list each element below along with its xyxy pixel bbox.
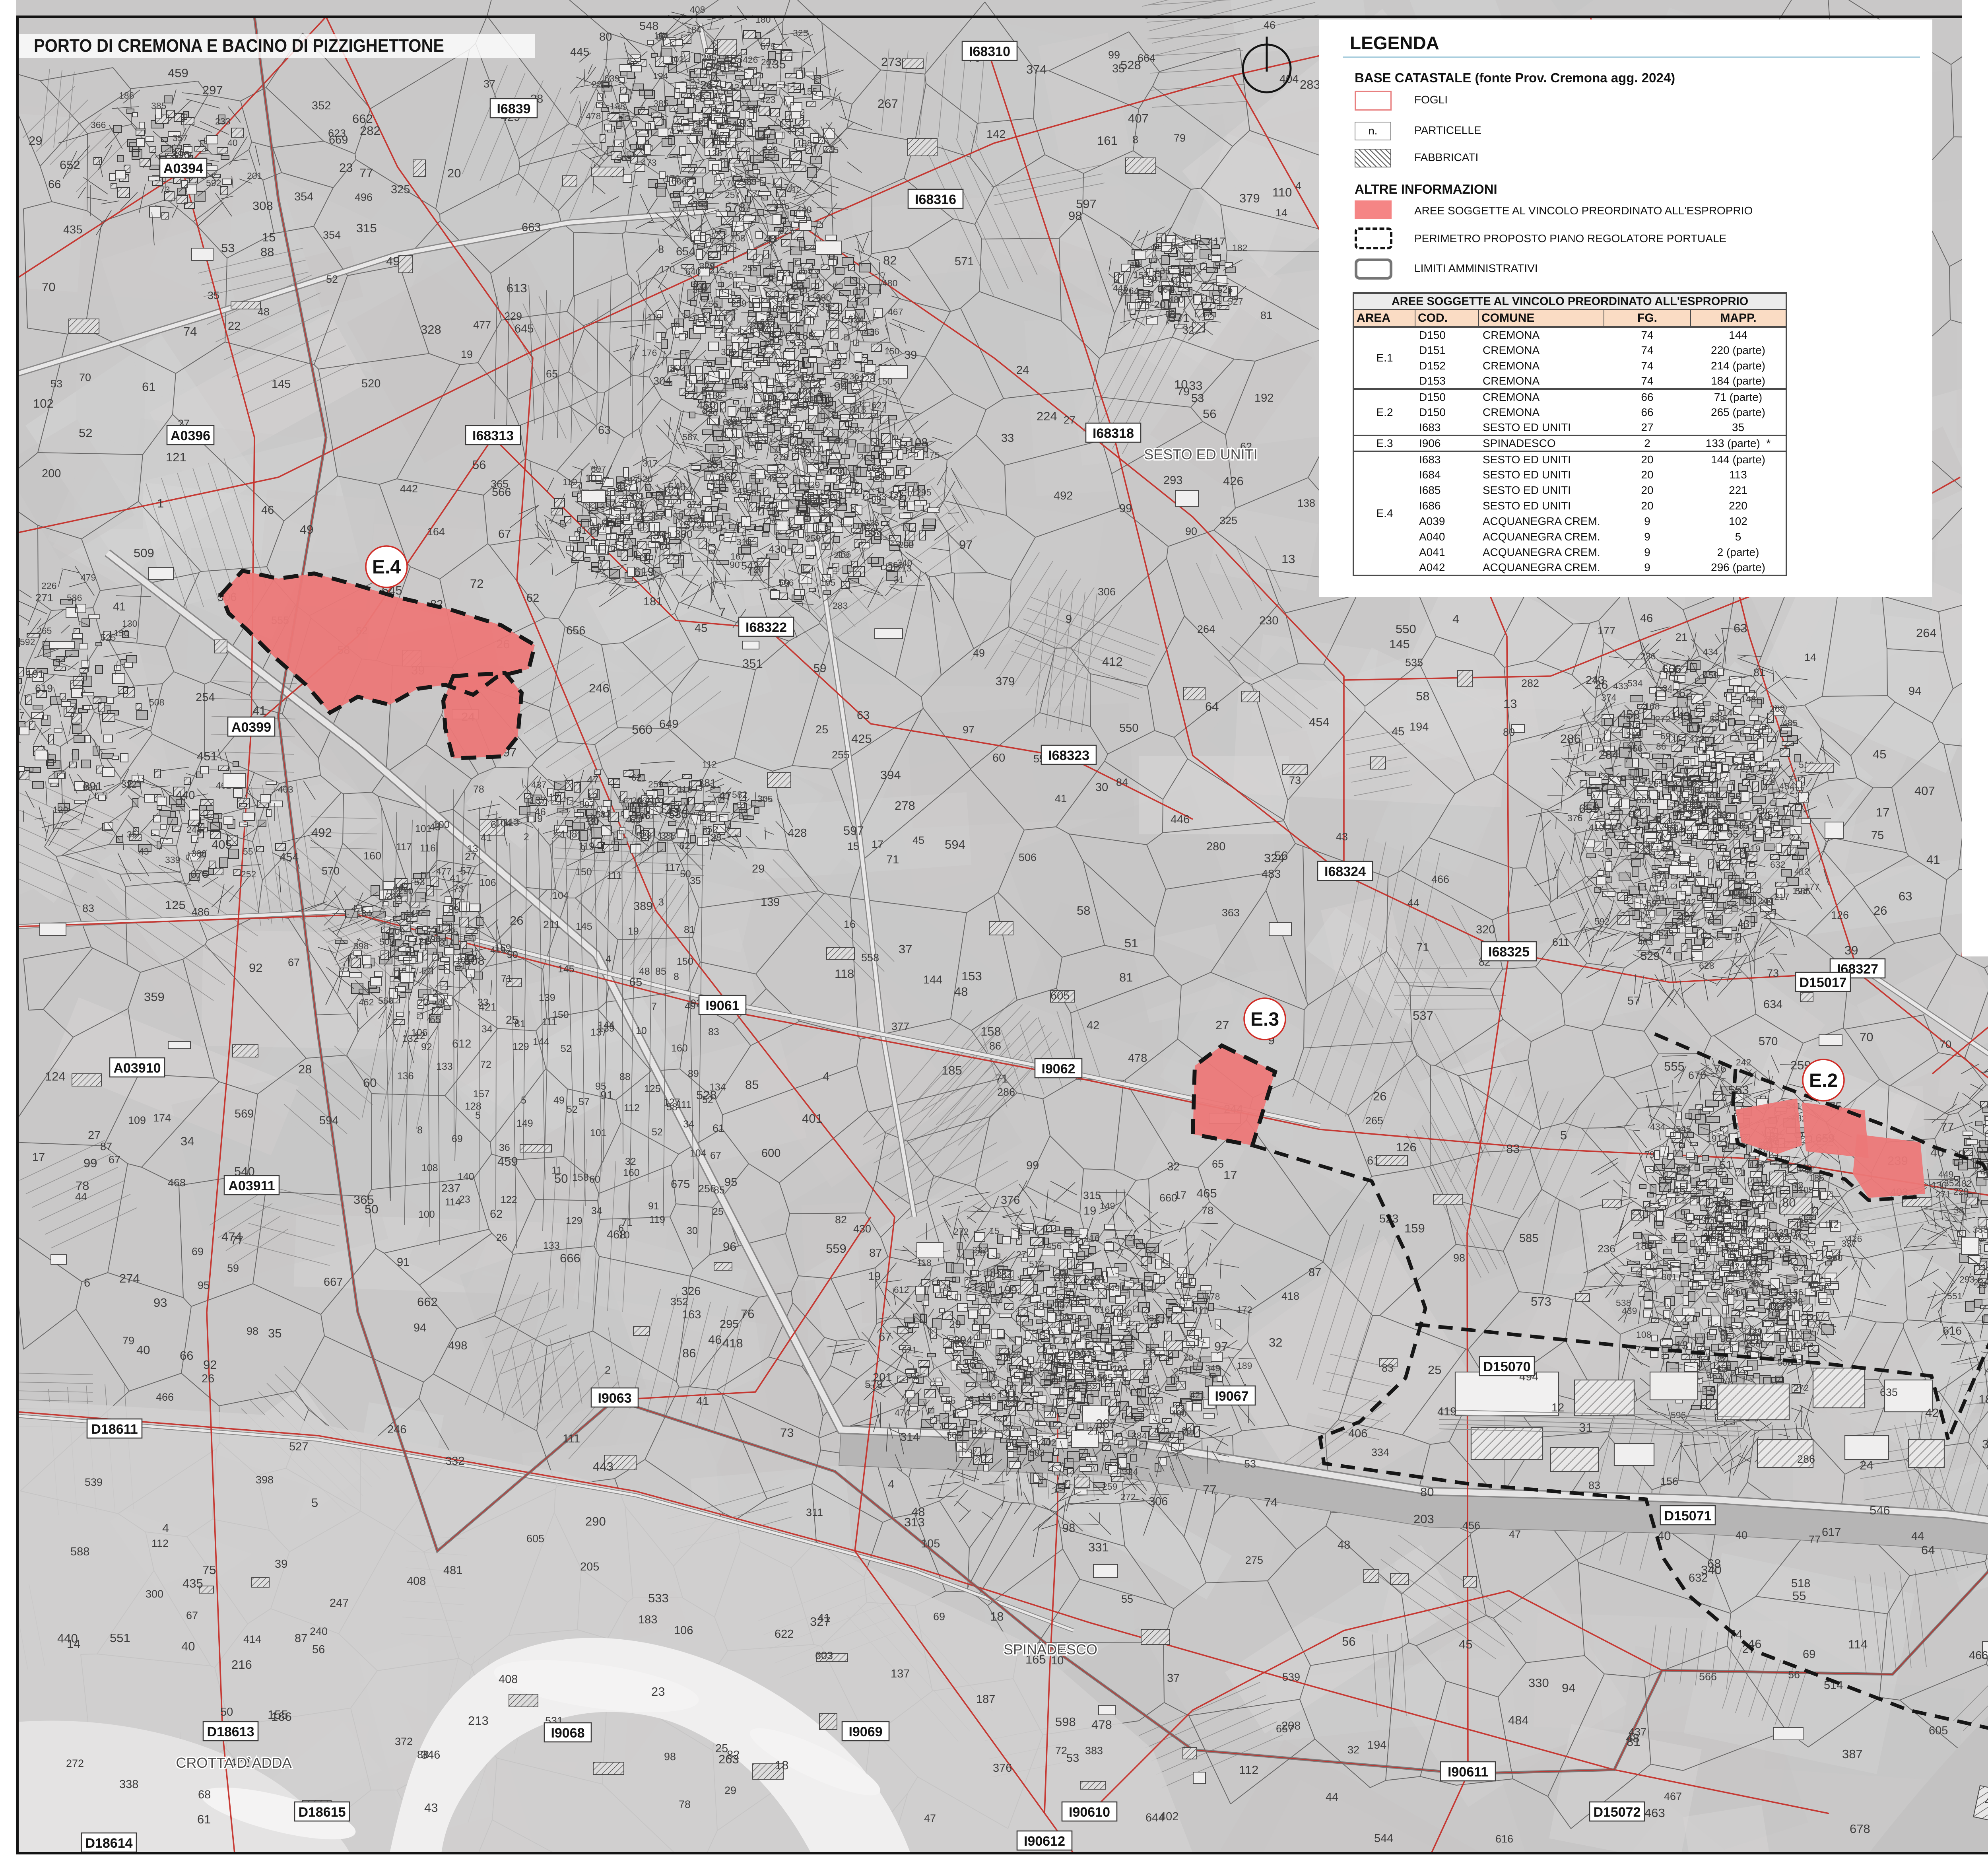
svg-text:138: 138 [1297,497,1315,509]
svg-text:259: 259 [648,779,663,789]
svg-text:10: 10 [1758,810,1770,822]
svg-text:74: 74 [1264,1495,1277,1509]
svg-text:50: 50 [680,869,691,880]
svg-text:41: 41 [817,1612,830,1625]
svg-text:4: 4 [823,1069,829,1083]
svg-text:59: 59 [813,662,826,675]
svg-text:35: 35 [690,875,701,886]
svg-text:324: 324 [1264,851,1285,865]
svg-text:338: 338 [119,1778,138,1791]
svg-text:32: 32 [1167,1160,1180,1173]
svg-text:19: 19 [868,1270,881,1283]
svg-text:35: 35 [208,290,219,301]
svg-text:252: 252 [241,869,256,879]
svg-text:98: 98 [1068,209,1082,223]
svg-text:64: 64 [1205,700,1219,713]
svg-text:265: 265 [1365,1115,1383,1127]
svg-text:459: 459 [168,66,188,80]
svg-text:498: 498 [448,1339,467,1352]
svg-text:14: 14 [1276,207,1287,219]
svg-text:163: 163 [682,1308,701,1321]
svg-text:90: 90 [695,94,705,104]
svg-text:77: 77 [1940,1120,1954,1134]
svg-text:4: 4 [888,1478,894,1491]
svg-text:43: 43 [1336,831,1348,843]
svg-text:349: 349 [1205,1363,1220,1373]
svg-text:292: 292 [1712,809,1727,820]
svg-text:403: 403 [278,784,293,795]
svg-text:546: 546 [1870,1503,1890,1517]
svg-text:144: 144 [923,974,942,986]
svg-text:116: 116 [420,843,436,854]
svg-text:57: 57 [579,1096,590,1108]
svg-text:73: 73 [160,185,170,195]
svg-text:53: 53 [50,378,62,390]
svg-text:259: 259 [1102,1481,1117,1492]
svg-text:447: 447 [709,130,724,141]
svg-text:23: 23 [651,1685,665,1699]
svg-text:89: 89 [688,1068,699,1079]
svg-text:I9068: I9068 [551,1726,584,1741]
svg-text:82: 82 [883,253,897,267]
svg-text:467: 467 [888,307,903,317]
svg-text:8: 8 [674,971,679,982]
svg-text:598: 598 [1055,1715,1076,1729]
svg-text:585: 585 [1519,1232,1538,1245]
svg-text:55: 55 [1121,1593,1133,1605]
svg-text:13: 13 [467,844,478,855]
svg-text:614: 614 [1717,707,1733,718]
svg-text:449: 449 [1105,1283,1120,1293]
svg-text:23: 23 [646,528,659,542]
svg-text:126: 126 [1831,909,1849,921]
svg-text:16: 16 [844,918,856,930]
svg-text:158: 158 [572,1172,589,1183]
svg-text:337: 337 [1841,1238,1856,1249]
svg-text:525: 525 [101,632,116,643]
svg-text:305: 305 [757,794,773,804]
svg-text:45: 45 [1459,1637,1472,1651]
svg-text:79: 79 [1177,385,1190,398]
svg-text:8: 8 [1132,134,1138,146]
svg-text:417: 417 [1208,235,1225,247]
svg-text:240: 240 [310,1625,328,1637]
svg-text:1: 1 [157,496,164,510]
svg-text:52: 52 [326,273,338,285]
svg-text:246: 246 [387,1423,406,1436]
svg-text:578: 578 [1205,1291,1220,1302]
svg-text:559: 559 [826,1242,846,1256]
svg-text:75: 75 [942,1283,952,1293]
svg-text:46: 46 [1640,612,1653,625]
svg-text:63: 63 [598,424,611,437]
svg-text:134: 134 [709,1082,726,1093]
svg-text:70: 70 [1860,1030,1873,1044]
svg-text:13: 13 [1281,552,1295,566]
svg-text:58: 58 [738,381,749,392]
svg-text:48: 48 [258,306,270,318]
svg-text:340: 340 [1701,1563,1722,1577]
svg-text:92: 92 [249,961,262,975]
svg-text:611: 611 [1552,936,1569,948]
svg-text:124: 124 [45,1069,66,1083]
svg-text:18: 18 [775,1758,788,1772]
svg-text:121: 121 [658,831,674,842]
svg-text:2: 2 [605,1364,611,1376]
svg-text:267: 267 [878,97,898,111]
svg-text:92: 92 [203,1358,217,1372]
svg-text:239: 239 [1092,1373,1107,1384]
svg-text:112: 112 [1824,1219,1839,1230]
svg-text:79: 79 [122,1335,134,1347]
svg-text:406: 406 [1348,1427,1367,1440]
svg-text:80: 80 [1782,1195,1796,1209]
svg-text:49: 49 [1752,1326,1763,1337]
svg-text:185: 185 [942,1063,962,1077]
svg-text:150: 150 [884,346,899,356]
svg-text:I68325: I68325 [1488,945,1530,960]
svg-text:306: 306 [1098,586,1116,598]
svg-text:39: 39 [1054,1271,1067,1284]
svg-text:239: 239 [1977,1280,1988,1290]
svg-text:135: 135 [765,57,786,71]
svg-text:133: 133 [543,1240,560,1251]
svg-text:195: 195 [820,577,835,588]
svg-text:351: 351 [742,657,763,671]
svg-text:53: 53 [1244,1458,1256,1470]
svg-text:46: 46 [261,504,274,517]
svg-text:283: 283 [1300,78,1320,91]
svg-text:82: 82 [727,1749,740,1761]
svg-text:I9067: I9067 [1215,1389,1248,1404]
svg-text:D18611: D18611 [91,1422,138,1437]
svg-text:213: 213 [468,1714,489,1728]
svg-text:100: 100 [433,819,450,830]
svg-text:211: 211 [543,919,560,931]
svg-text:77: 77 [1809,1533,1821,1545]
svg-text:34: 34 [1662,683,1673,694]
svg-text:437: 437 [1629,1726,1646,1738]
svg-text:94: 94 [1908,685,1921,698]
svg-text:104: 104 [552,890,569,901]
svg-text:57: 57 [460,865,472,877]
svg-text:121: 121 [413,936,429,947]
svg-text:550: 550 [1396,622,1416,636]
svg-text:17: 17 [1175,1189,1186,1201]
svg-text:555: 555 [1664,1059,1685,1073]
svg-text:99: 99 [83,1156,97,1170]
svg-text:17: 17 [549,792,560,803]
svg-text:539: 539 [85,1476,103,1488]
svg-text:502: 502 [670,363,685,373]
svg-text:597: 597 [1076,197,1097,211]
svg-text:528: 528 [1120,58,1141,72]
svg-text:SESTO ED UNITI: SESTO ED UNITI [1144,446,1257,463]
svg-text:94: 94 [834,379,847,393]
svg-text:40: 40 [1736,1529,1747,1541]
svg-text:45: 45 [1873,747,1886,761]
svg-text:535: 535 [1405,657,1423,669]
svg-text:19: 19 [461,348,473,360]
svg-text:34: 34 [181,1134,194,1148]
svg-text:A03911: A03911 [228,1178,275,1193]
svg-text:295: 295 [720,1318,739,1331]
svg-text:99: 99 [1108,49,1120,61]
svg-text:71: 71 [501,973,512,984]
svg-text:71: 71 [886,853,899,866]
svg-text:61: 61 [197,1812,211,1826]
svg-text:426: 426 [1223,474,1244,488]
svg-text:E.4: E.4 [372,557,401,578]
svg-text:65: 65 [430,1014,441,1025]
svg-text:55: 55 [243,846,253,857]
svg-text:640: 640 [705,60,726,74]
svg-text:267: 267 [700,79,719,92]
svg-text:363: 363 [1222,907,1240,919]
svg-text:117: 117 [665,862,681,873]
svg-text:612: 612 [894,1285,909,1295]
svg-text:41: 41 [1055,793,1067,805]
svg-text:158: 158 [980,1024,1001,1038]
svg-text:566: 566 [888,560,903,570]
svg-text:85: 85 [745,1078,759,1092]
svg-text:25: 25 [815,723,828,736]
svg-text:357: 357 [173,133,188,143]
svg-text:I68323: I68323 [1048,748,1089,763]
svg-text:662: 662 [352,112,373,126]
svg-text:52: 52 [561,1043,572,1054]
svg-text:4: 4 [1452,612,1459,626]
svg-text:255: 255 [742,263,757,273]
svg-text:352: 352 [670,1296,688,1308]
svg-text:42: 42 [1925,1406,1939,1420]
svg-text:71: 71 [1416,941,1429,954]
svg-text:I90610: I90610 [1069,1805,1110,1820]
svg-text:619: 619 [634,565,654,579]
svg-text:594: 594 [319,1114,338,1127]
svg-text:273: 273 [881,55,902,69]
svg-text:186: 186 [1635,1240,1653,1252]
svg-text:411: 411 [1193,1305,1208,1316]
svg-text:433: 433 [1613,681,1628,691]
svg-text:428: 428 [1006,1349,1021,1360]
svg-text:441: 441 [1985,1795,1988,1808]
svg-text:244: 244 [1758,896,1773,906]
svg-text:78: 78 [1202,1205,1213,1217]
svg-text:I68316: I68316 [915,192,956,207]
svg-text:106: 106 [634,810,650,822]
svg-text:451: 451 [197,749,217,763]
svg-text:I68318: I68318 [1093,426,1134,441]
svg-text:165: 165 [796,330,814,342]
svg-text:478: 478 [1091,1718,1112,1732]
svg-text:547: 547 [746,103,761,114]
svg-text:496: 496 [355,191,373,203]
svg-text:19: 19 [628,926,639,937]
svg-text:286: 286 [997,1086,1015,1098]
svg-text:242: 242 [1736,1057,1751,1067]
svg-text:91: 91 [648,1201,659,1212]
svg-text:616: 616 [1095,1304,1110,1315]
svg-text:46: 46 [708,1333,722,1347]
svg-text:70: 70 [42,280,55,294]
svg-text:224: 224 [1037,409,1057,423]
svg-text:374: 374 [687,499,702,509]
svg-text:200: 200 [42,467,61,480]
svg-text:28: 28 [298,1062,312,1076]
svg-text:278: 278 [895,799,915,812]
svg-text:9: 9 [537,813,543,824]
svg-text:2: 2 [432,988,438,999]
svg-text:23: 23 [339,161,353,175]
svg-text:98: 98 [1453,1252,1465,1264]
svg-text:66: 66 [180,1349,193,1362]
svg-text:509: 509 [134,546,154,560]
svg-text:61: 61 [712,1122,724,1134]
svg-text:50: 50 [507,949,518,960]
svg-text:132: 132 [402,1033,419,1044]
svg-text:39: 39 [275,1558,287,1570]
svg-text:264: 264 [1197,623,1215,635]
svg-text:139: 139 [598,1023,615,1034]
svg-text:478: 478 [1128,1052,1147,1065]
svg-text:62: 62 [490,1208,503,1221]
svg-text:456: 456 [836,549,851,560]
svg-text:474: 474 [895,1407,910,1418]
svg-text:137: 137 [891,1668,910,1680]
svg-text:102: 102 [815,488,830,498]
svg-text:67: 67 [498,528,511,540]
svg-text:108: 108 [1636,1329,1651,1340]
svg-text:463: 463 [1716,1363,1731,1373]
svg-text:412: 412 [1794,866,1809,877]
svg-text:29: 29 [752,863,765,875]
svg-text:83: 83 [1588,1479,1600,1491]
svg-text:445: 445 [570,46,589,58]
svg-text:57: 57 [691,126,701,136]
svg-text:426: 426 [743,54,758,65]
svg-text:34: 34 [481,1024,493,1035]
svg-text:76: 76 [741,1307,754,1321]
svg-text:418: 418 [1281,1290,1299,1302]
svg-text:272: 272 [1120,1492,1136,1502]
svg-text:644: 644 [1145,1811,1165,1824]
svg-text:139: 139 [539,992,555,1003]
svg-text:19: 19 [1750,844,1761,854]
svg-text:81: 81 [1753,667,1765,678]
svg-text:63: 63 [1734,621,1747,635]
svg-text:678: 678 [1850,1822,1870,1836]
svg-text:51: 51 [1124,936,1138,950]
svg-text:67: 67 [288,956,300,968]
svg-text:669: 669 [329,134,348,146]
svg-text:185: 185 [1809,1173,1824,1183]
svg-text:17: 17 [32,1151,45,1164]
svg-text:D15070: D15070 [1483,1359,1530,1374]
svg-text:621: 621 [631,772,646,783]
svg-text:156: 156 [1660,1475,1678,1487]
svg-text:407: 407 [1128,111,1149,125]
svg-text:174: 174 [153,1112,171,1124]
svg-text:142: 142 [986,128,1006,141]
svg-text:72: 72 [1055,1745,1067,1757]
svg-text:119: 119 [649,1214,665,1225]
svg-text:389: 389 [633,900,652,913]
svg-text:56: 56 [1203,407,1216,421]
svg-text:315: 315 [1083,1189,1101,1201]
svg-text:280: 280 [1206,840,1225,853]
svg-text:573: 573 [1531,1294,1551,1308]
svg-text:578: 578 [725,200,745,214]
svg-text:67: 67 [710,1150,721,1161]
svg-text:569: 569 [235,1108,254,1120]
svg-text:24: 24 [1016,364,1029,377]
svg-text:233: 233 [215,116,230,126]
svg-text:387: 387 [1842,1747,1863,1761]
svg-text:430: 430 [769,543,786,555]
svg-text:421: 421 [1190,1390,1205,1400]
svg-text:101: 101 [590,1127,607,1139]
svg-text:5: 5 [475,1110,481,1121]
svg-text:286: 286 [1797,1453,1815,1465]
svg-text:640: 640 [685,266,701,277]
svg-text:74: 74 [183,325,197,338]
svg-text:49: 49 [973,647,985,659]
svg-text:632: 632 [1770,859,1785,870]
svg-text:93: 93 [740,116,753,130]
svg-text:546: 546 [668,481,686,493]
svg-text:244: 244 [1733,760,1752,773]
svg-text:612: 612 [452,1038,471,1050]
svg-text:2: 2 [687,192,694,206]
svg-text:I68324: I68324 [1324,864,1366,879]
svg-text:354: 354 [294,190,313,203]
svg-text:6: 6 [84,1277,90,1289]
svg-text:75: 75 [202,1563,216,1577]
svg-text:39: 39 [1182,1425,1192,1436]
svg-text:57: 57 [683,518,697,532]
svg-text:663: 663 [522,221,541,234]
svg-text:A03910: A03910 [113,1061,161,1076]
svg-text:385: 385 [151,101,166,111]
svg-text:379: 379 [1773,1300,1792,1312]
svg-text:5: 5 [1560,1128,1567,1142]
svg-text:290: 290 [585,1514,606,1528]
svg-text:113: 113 [678,784,692,795]
svg-text:66: 66 [48,178,61,191]
svg-text:94: 94 [414,1322,426,1334]
svg-text:47: 47 [587,774,599,786]
svg-text:32: 32 [625,1156,636,1167]
svg-text:538: 538 [1616,1298,1631,1308]
svg-text:4: 4 [606,954,611,965]
svg-text:160: 160 [623,1167,640,1178]
svg-text:146: 146 [981,1391,996,1401]
svg-text:79: 79 [1644,1149,1655,1160]
svg-text:32: 32 [1269,1335,1282,1349]
svg-text:83: 83 [82,902,94,914]
svg-text:79: 79 [1174,132,1186,144]
svg-text:187: 187 [976,1693,995,1706]
svg-text:462: 462 [359,997,374,1007]
svg-text:52: 52 [652,1127,663,1138]
svg-text:48: 48 [954,985,968,999]
svg-text:480: 480 [882,278,897,288]
svg-text:27: 27 [1064,414,1076,426]
svg-text:622: 622 [775,1628,794,1640]
svg-text:626: 626 [1725,1286,1740,1296]
svg-text:41: 41 [1926,853,1940,867]
